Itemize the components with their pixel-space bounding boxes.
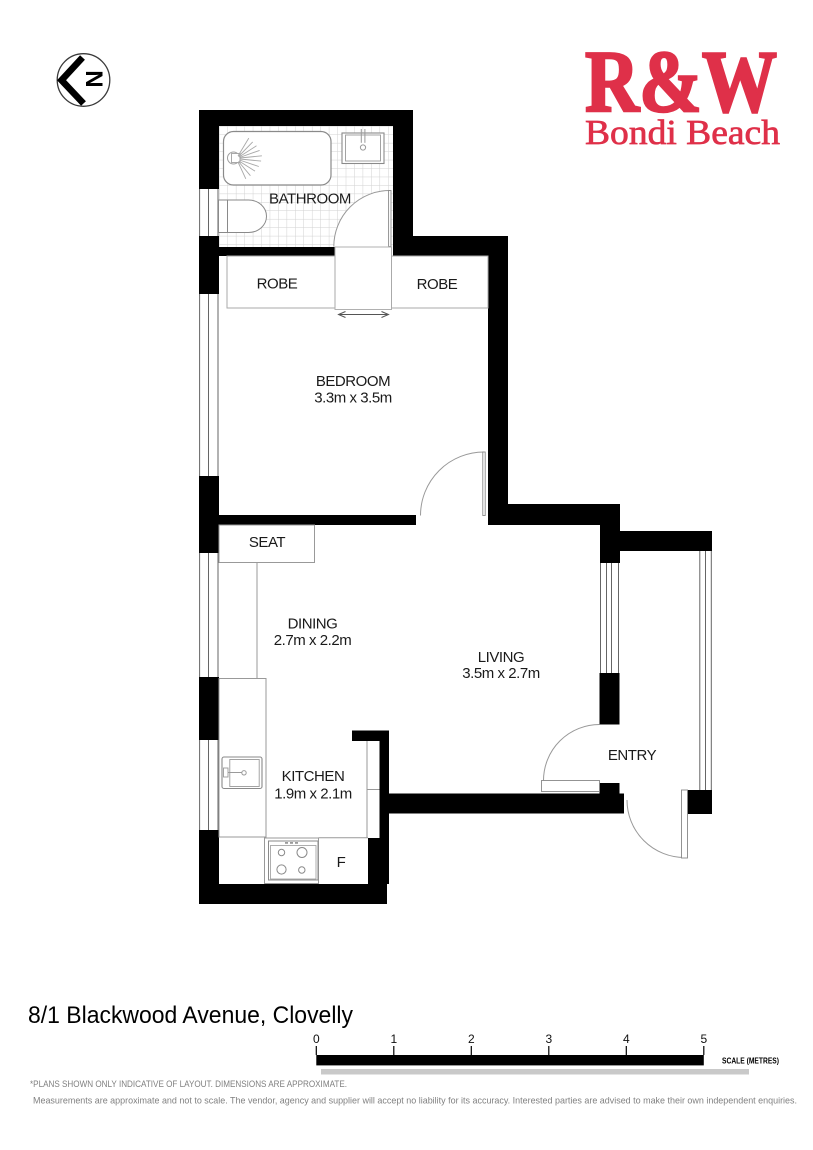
svg-text:ROBE: ROBE xyxy=(257,276,298,293)
svg-text:5: 5 xyxy=(700,1032,707,1046)
svg-text:8/1 Blackwood Avenue, Clovelly: 8/1 Blackwood Avenue, Clovelly xyxy=(28,1002,353,1029)
svg-text:1: 1 xyxy=(390,1032,397,1046)
svg-text:Bondi Beach: Bondi Beach xyxy=(585,113,781,152)
svg-text:SEAT: SEAT xyxy=(249,534,286,551)
svg-text:2: 2 xyxy=(468,1032,475,1046)
svg-text:ENTRY: ENTRY xyxy=(608,747,657,764)
svg-text:LIVING: LIVING xyxy=(478,649,524,666)
svg-text:2.7m x 2.2m: 2.7m x 2.2m xyxy=(274,632,352,649)
svg-text:Measurements are approximate a: Measurements are approximate and not to … xyxy=(33,1096,797,1106)
svg-text:N: N xyxy=(82,70,109,87)
svg-text:DINING: DINING xyxy=(288,616,338,633)
svg-text:ROBE: ROBE xyxy=(417,276,458,293)
svg-text:KITCHEN: KITCHEN xyxy=(282,768,345,785)
svg-text:3: 3 xyxy=(545,1032,552,1046)
svg-text:3.3m x 3.5m: 3.3m x 3.5m xyxy=(314,390,392,407)
svg-text:BEDROOM: BEDROOM xyxy=(316,373,390,390)
svg-text:*PLANS SHOWN ONLY INDICATIVE O: *PLANS SHOWN ONLY INDICATIVE OF LAYOUT. … xyxy=(30,1079,347,1089)
svg-text:1.9m x 2.1m: 1.9m x 2.1m xyxy=(274,786,352,803)
svg-text:SCALE (METRES): SCALE (METRES) xyxy=(722,1056,779,1066)
svg-text:F: F xyxy=(337,854,346,871)
svg-text:3.5m x 2.7m: 3.5m x 2.7m xyxy=(462,665,540,682)
svg-text:0: 0 xyxy=(313,1032,320,1046)
svg-text:4: 4 xyxy=(623,1032,630,1046)
svg-text:BATHROOM: BATHROOM xyxy=(269,191,351,208)
